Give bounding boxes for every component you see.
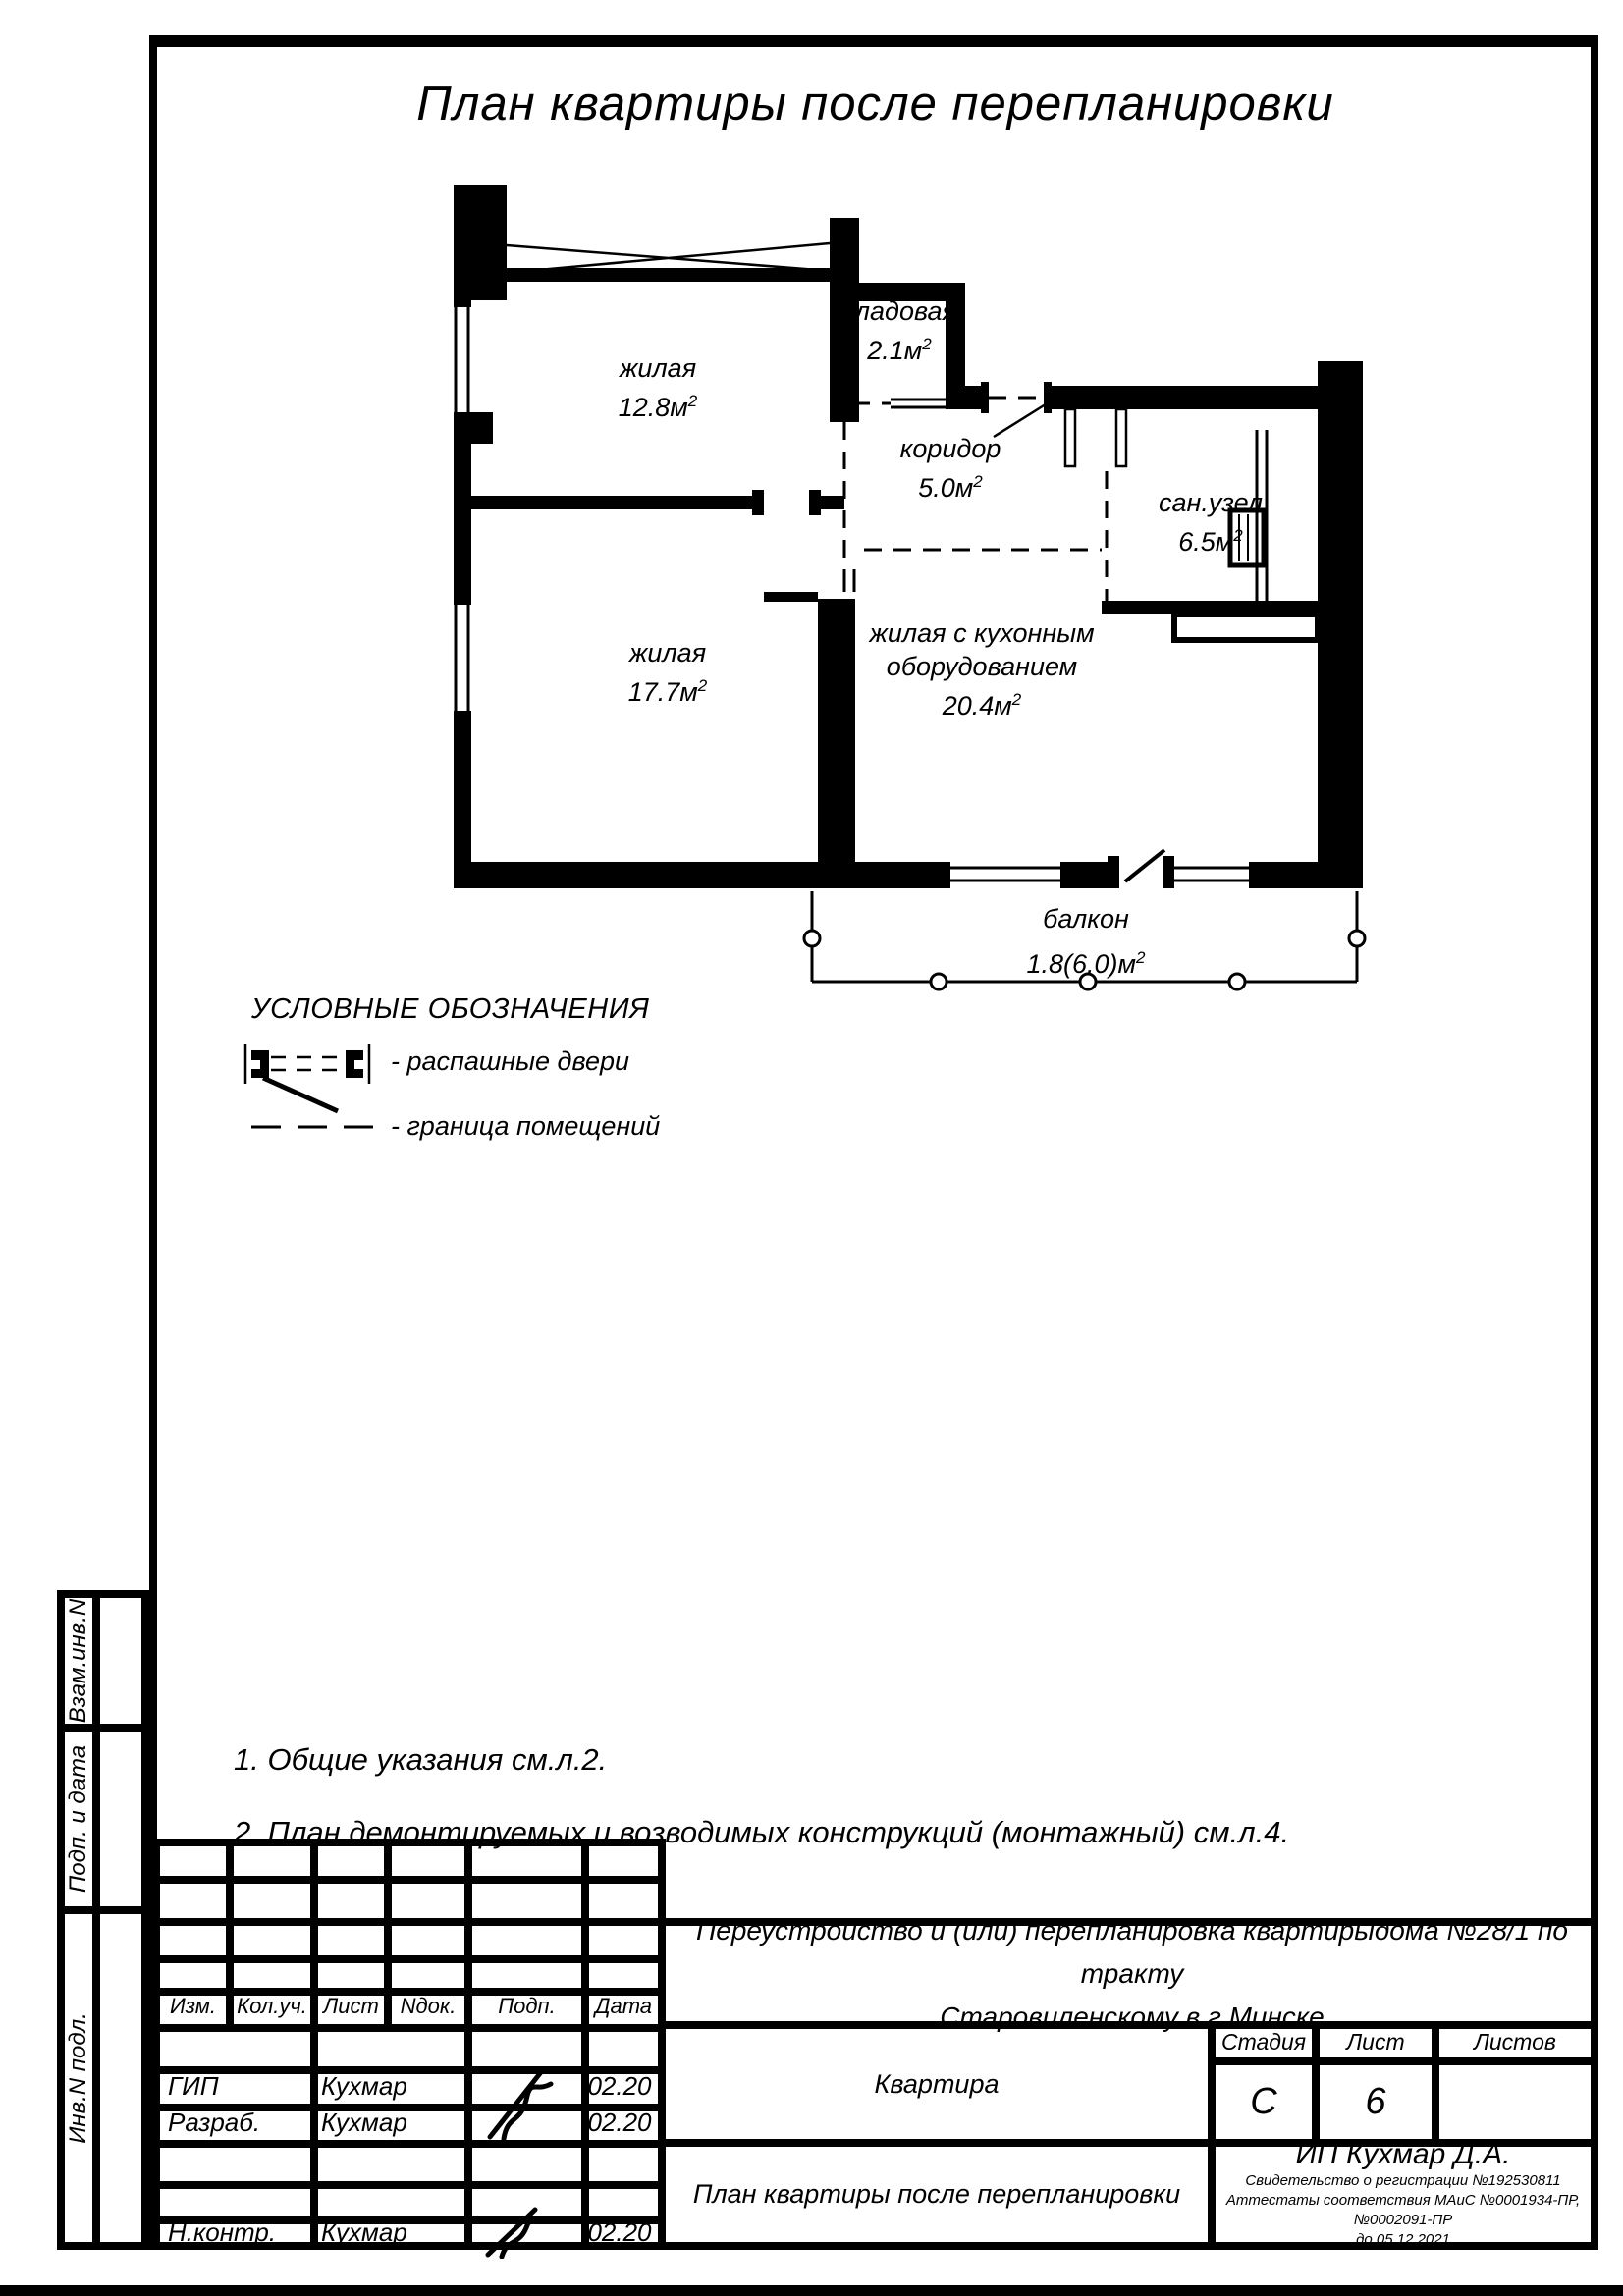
name-gip: Кухмар [321, 2071, 407, 2102]
sheets-label: Листов [1439, 2027, 1591, 2057]
legend-label-doors: - распашные двери [391, 1046, 629, 1077]
room-label-bathroom: сан.узел 6.5м2 [1159, 486, 1263, 559]
room-area: 5.0м2 [900, 465, 1001, 505]
rev-col-data: Дата [589, 1994, 658, 2019]
room-name: балкон [1026, 899, 1145, 938]
company-cert2: Аттестаты соответствия МАиС №0001934-ПР,… [1216, 2191, 1591, 2230]
stage-value: С [1216, 2065, 1312, 2139]
legend-title: УСЛОВНЫЕ ОБОЗНАЧЕНИЯ [251, 993, 650, 1026]
role-razrab: Разраб. [168, 2108, 260, 2138]
rev-col-list: Лист [318, 1994, 384, 2019]
room-area: 12.8м2 [619, 385, 698, 424]
slanted-lintel-lines [507, 243, 830, 273]
room-name: жилая [619, 351, 698, 385]
room-name: кладовая [842, 294, 956, 328]
corridor-leader-line [994, 402, 1049, 437]
company-cell: ИП Кухмар Д.А. Свидетельство о регистрац… [1216, 2145, 1591, 2242]
title-block: Изм. Кол.уч. Лист Nдок. Подп. Дата ГИП К… [152, 1839, 1598, 2250]
name-razrab: Кухмар [321, 2108, 407, 2138]
room-name: сан.узел [1159, 486, 1263, 519]
room-name: коридор [900, 432, 1001, 465]
margin-label-vzam: Взам.инв.N [65, 1598, 92, 1724]
stage-label: Стадия [1216, 2027, 1312, 2057]
room-label-living2: жилая 17.7м2 [628, 636, 708, 709]
balcony-door-leaf [1125, 850, 1164, 881]
rev-col-podp: Подп. [472, 1994, 581, 2019]
rev-col-izm: Изм. [160, 1994, 226, 2019]
room-label-living-kitchen: жилая с кухонным оборудованием 20.4м2 [859, 616, 1105, 722]
legend-label-border: - граница помещений [391, 1111, 660, 1142]
room-area: 6.5м2 [1159, 519, 1263, 559]
company-cert1: Свидетельство о регистрации №192530811 [1245, 2171, 1560, 2191]
date-razrab: 02.20 [581, 2108, 658, 2138]
scan-edge-bottom [0, 2285, 1623, 2296]
company-cert3: до 05.12.2021 [1356, 2230, 1450, 2250]
rev-col-koluch: Кол.уч. [234, 1994, 310, 2019]
margin-label-inv: Инв.N подл. [65, 1914, 92, 2242]
swing-door-symbol [243, 1033, 410, 1115]
room-name: жилая [628, 636, 708, 669]
role-gip: ГИП [168, 2071, 219, 2102]
project-name: Переустройство и (или) перепланировка кв… [666, 1926, 1598, 2021]
sheet-value: 6 [1320, 2065, 1432, 2139]
company-name: ИП Кухмар Д.А. [1296, 2138, 1511, 2171]
room-area: 20.4м2 [859, 683, 1105, 722]
note-line: 1. Общие указания см.л.2. [234, 1724, 1289, 1796]
rev-col-ndok: Nдок. [392, 1994, 464, 2019]
room-label-balcony: балкон 1.8(6.0)м2 [1026, 899, 1145, 984]
sheet-label: Лист [1320, 2027, 1432, 2057]
signature-stroke-top [478, 2062, 576, 2145]
drawing-title-cell: План квартиры после перепланировки [666, 2147, 1208, 2242]
page-title: План квартиры после перепланировки [152, 77, 1598, 132]
name-nkontr: Кухмар [321, 2217, 407, 2248]
room-label-living1: жилая 12.8м2 [619, 351, 698, 424]
room-area: 1.8(6.0)м2 [1026, 938, 1145, 984]
room-name: жилая с кухонным оборудованием [859, 616, 1105, 683]
room-border-symbol [249, 1119, 387, 1135]
project-name-line1: Переустройство и (или) перепланировка кв… [666, 1909, 1598, 1996]
signature-stroke-bottom [478, 2204, 576, 2259]
margin-label-podp: Подп. и дата [65, 1732, 92, 1906]
date-gip: 02.20 [581, 2071, 658, 2102]
date-nkontr: 02.20 [581, 2217, 658, 2248]
role-nkontr: Н.контр. [168, 2217, 276, 2248]
object-name: Квартира [666, 2029, 1208, 2139]
frame-top [149, 35, 1598, 47]
sheets-value [1439, 2065, 1591, 2139]
drawing-sheet: План квартиры после перепланировки [0, 0, 1623, 2296]
room-area: 2.1м2 [842, 328, 956, 367]
room-label-storage: кладовая 2.1м2 [842, 294, 956, 367]
margin-columns: Взам.инв.N Подп. и дата Инв.N подл. [57, 1590, 149, 2250]
room-label-corridor: коридор 5.0м2 [900, 432, 1001, 505]
room-area: 17.7м2 [628, 669, 708, 709]
